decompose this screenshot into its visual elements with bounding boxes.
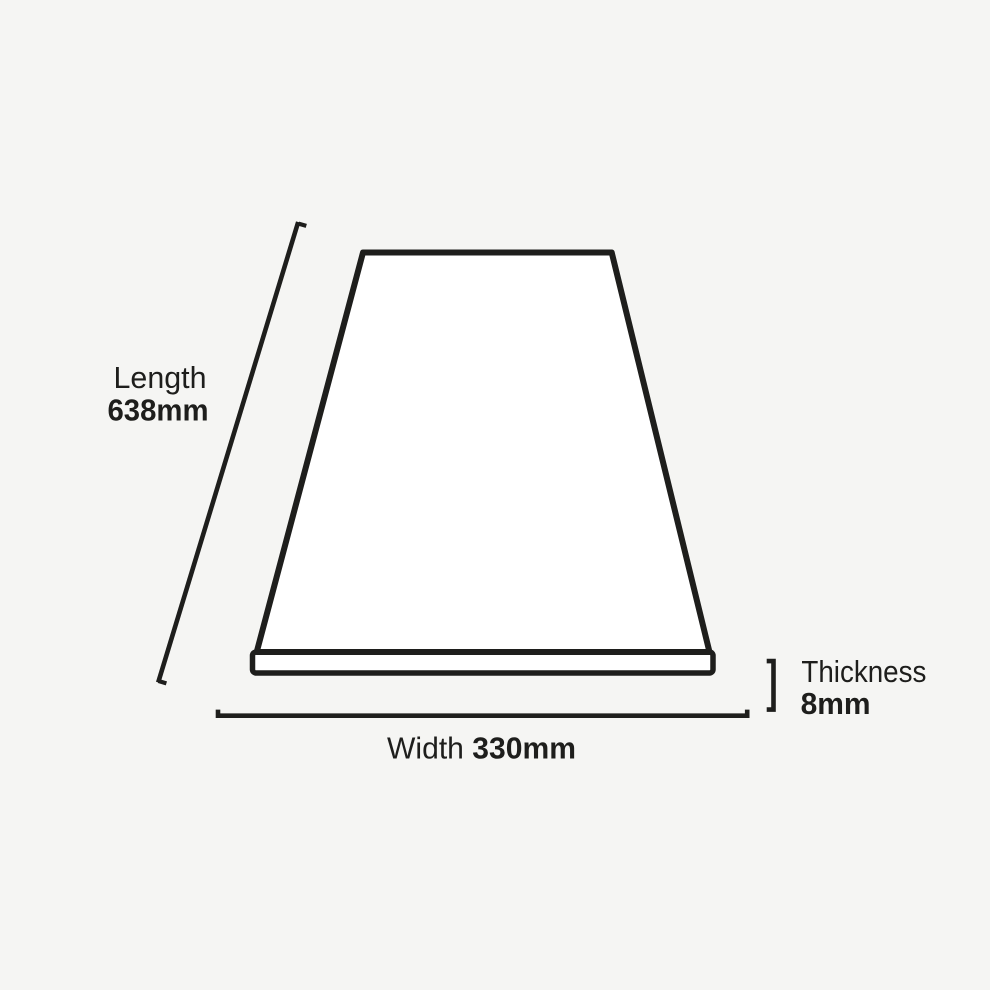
svg-text:Width 330mm: Width 330mm	[387, 731, 576, 766]
svg-text:8mm: 8mm	[801, 686, 871, 721]
svg-text:638mm: 638mm	[108, 393, 209, 428]
svg-text:Thickness: Thickness	[801, 654, 926, 689]
svg-text:Length: Length	[114, 360, 207, 395]
